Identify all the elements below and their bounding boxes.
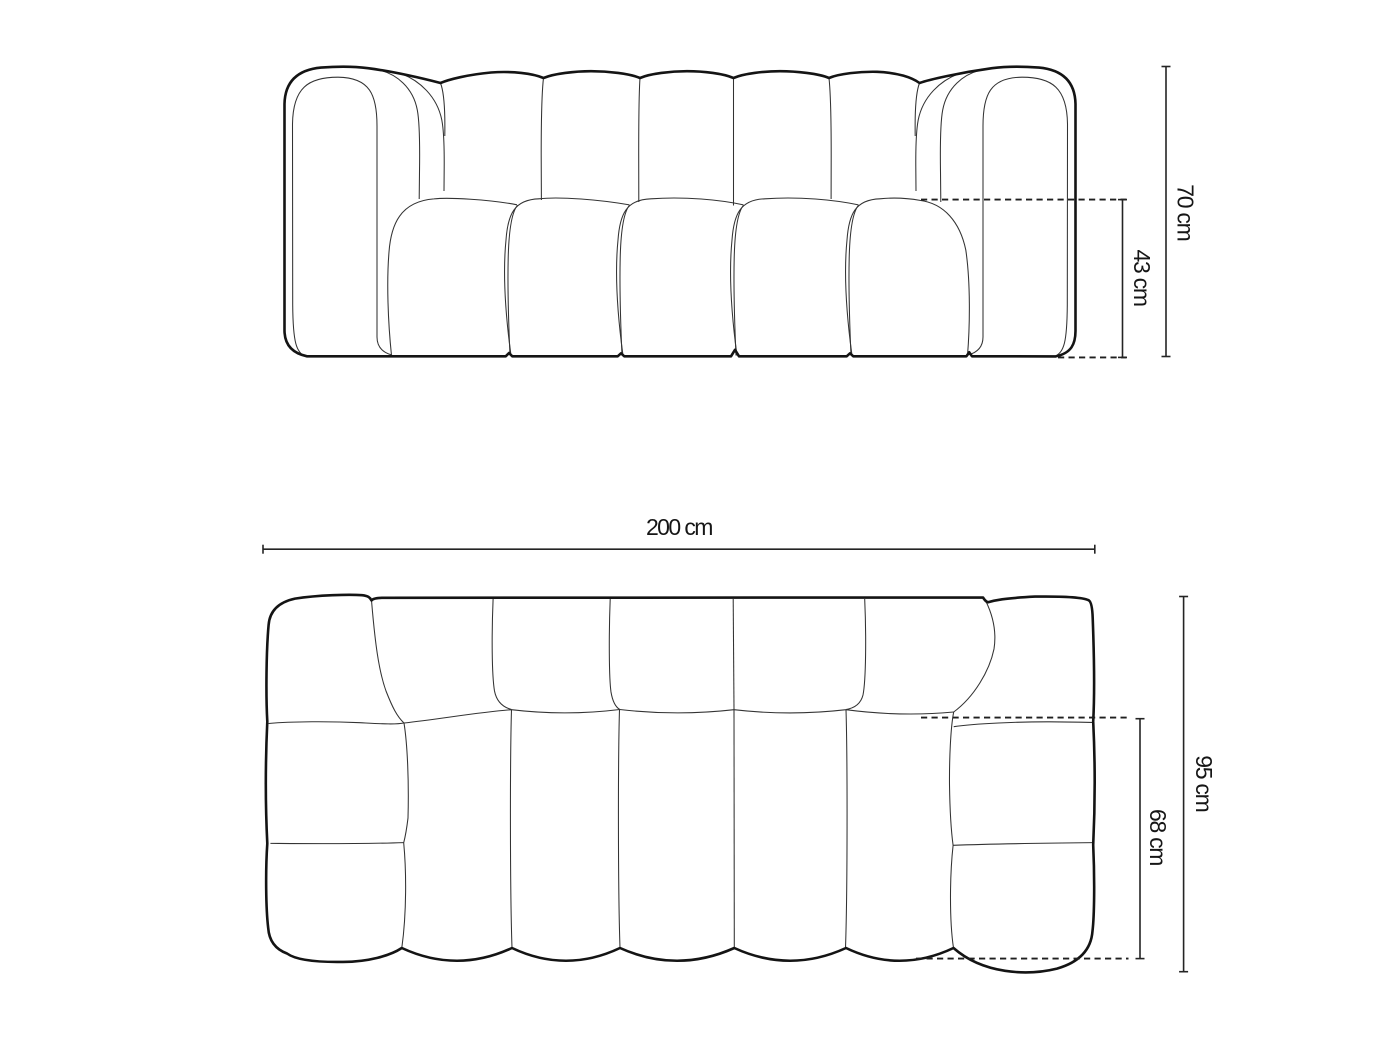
- svg-text:68 cm: 68 cm: [1145, 809, 1171, 867]
- svg-text:70 cm: 70 cm: [1173, 184, 1199, 242]
- svg-text:200 cm: 200 cm: [646, 514, 714, 540]
- svg-text:95 cm: 95 cm: [1191, 755, 1217, 813]
- svg-text:43 cm: 43 cm: [1129, 250, 1155, 308]
